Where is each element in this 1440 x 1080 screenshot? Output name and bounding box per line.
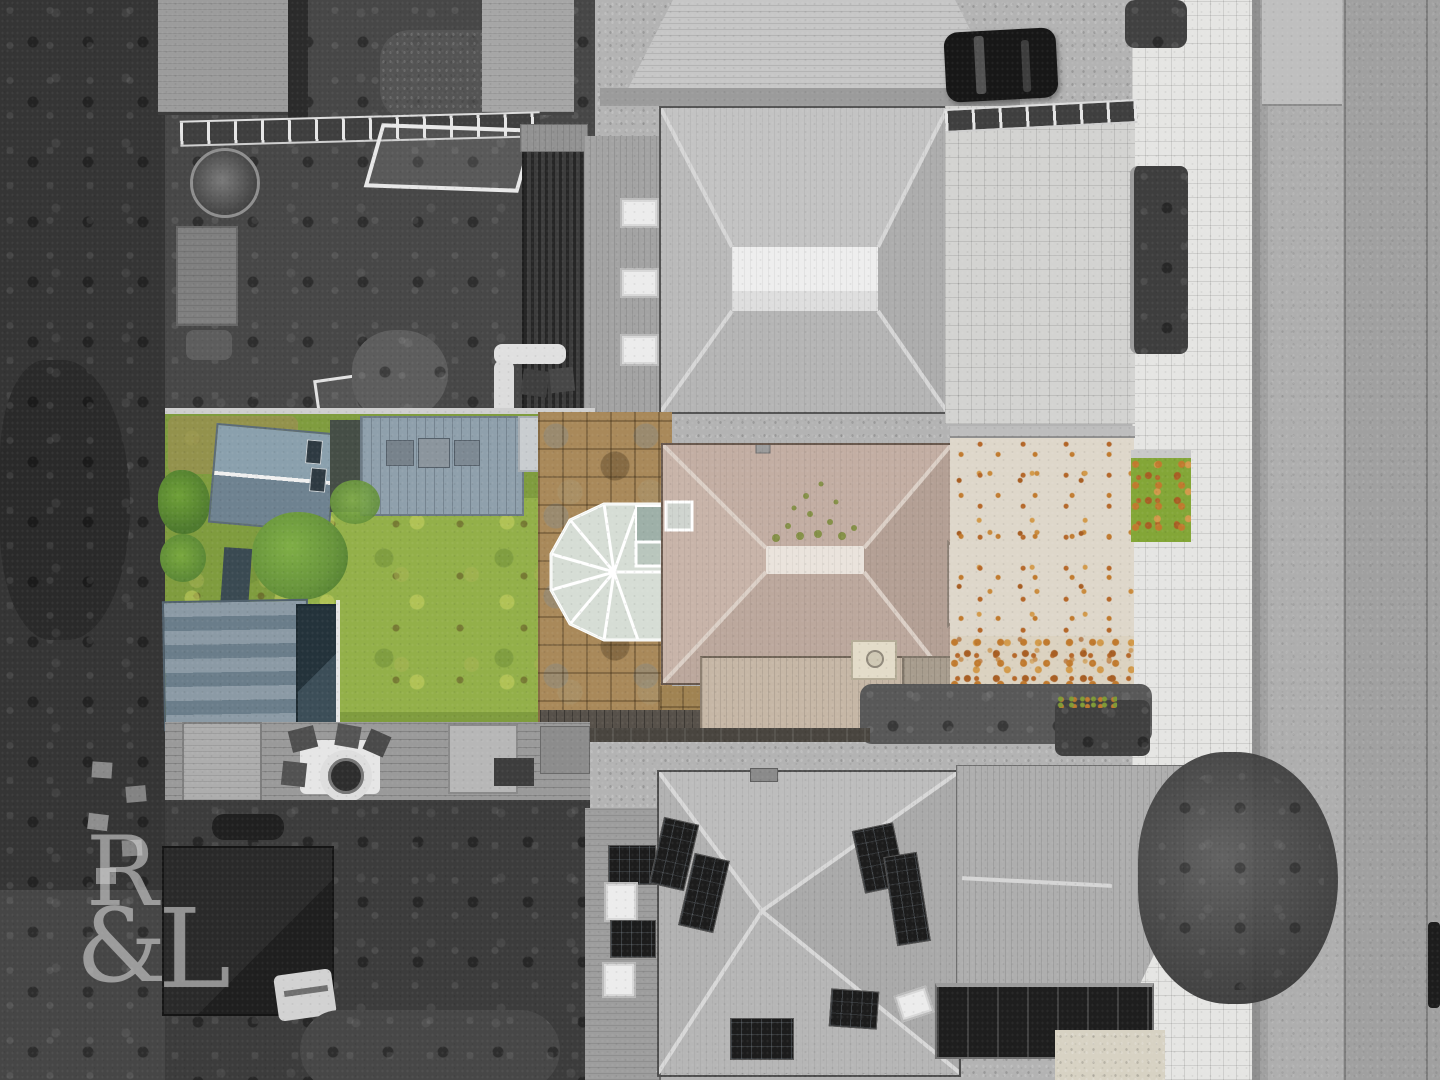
hedge-planter-top [1125, 0, 1187, 48]
deck-furniture [386, 440, 414, 466]
shed-roof-top [482, 0, 574, 115]
outbuilding-roof [162, 599, 310, 732]
outbuilding-fence-line [336, 600, 340, 722]
trampoline [190, 148, 260, 218]
robot-mower [212, 814, 284, 840]
front-grass-patch [1131, 450, 1191, 542]
subject-roof-tile-texture [660, 440, 952, 686]
shed-window [309, 467, 327, 492]
hedge-planter-long [1130, 166, 1188, 354]
roof-tile-texture [660, 107, 948, 413]
conservatory [546, 498, 670, 646]
sofa-cushion [520, 368, 549, 397]
watermark-letter-l: L [158, 894, 231, 1004]
bottom-trees [300, 1010, 560, 1080]
outbuilding-annex-dark [296, 604, 340, 724]
road-edge-line [1426, 0, 1428, 1080]
roof-window [620, 268, 659, 298]
garden-bush [158, 470, 210, 534]
solar-panel [829, 988, 880, 1029]
cube-chair [334, 723, 361, 749]
flower-bed-edge [1055, 696, 1117, 708]
fire-pit [320, 750, 372, 802]
sandy-courtyard [1055, 1030, 1165, 1080]
hedge-bottom-right [1055, 700, 1150, 756]
cube-chair [281, 761, 307, 787]
deck-furniture [418, 438, 450, 468]
garden-bush [160, 534, 206, 582]
deck-furniture [454, 440, 480, 466]
garage-roof-cap [520, 124, 588, 152]
garden-clutter [186, 330, 232, 360]
garage-roof-top-left [158, 0, 288, 115]
street-tree-texture [1152, 766, 1324, 990]
black-car [943, 27, 1059, 103]
sofa-cushion [549, 367, 575, 393]
garden-tree-small [330, 480, 380, 524]
stepping-stone [91, 761, 112, 778]
solar-panel [730, 1018, 794, 1060]
roof-window [602, 962, 636, 998]
roof-window [620, 334, 659, 366]
front-wall-line [950, 426, 1135, 438]
football-goal-large [364, 123, 537, 192]
road-joint-line [1344, 0, 1346, 1080]
garden-table-dark [494, 758, 534, 786]
wall-strip [288, 0, 308, 132]
neighbour-driveway [945, 106, 1135, 424]
chimney-pot [866, 650, 884, 668]
stepping-stone [125, 785, 146, 803]
concrete-pad [1262, 0, 1342, 106]
greenhouse [176, 226, 238, 326]
watermark-letter-ampersand: & [76, 896, 167, 998]
chimney-grey [750, 768, 778, 782]
aerial-photo: R & L [0, 0, 1440, 1080]
shed-window [305, 439, 323, 464]
parked-car-road-edge [1428, 922, 1440, 1008]
roof-window [620, 198, 659, 228]
roof-window [604, 882, 638, 922]
storage-box [540, 726, 590, 774]
garden-tree [252, 512, 348, 600]
